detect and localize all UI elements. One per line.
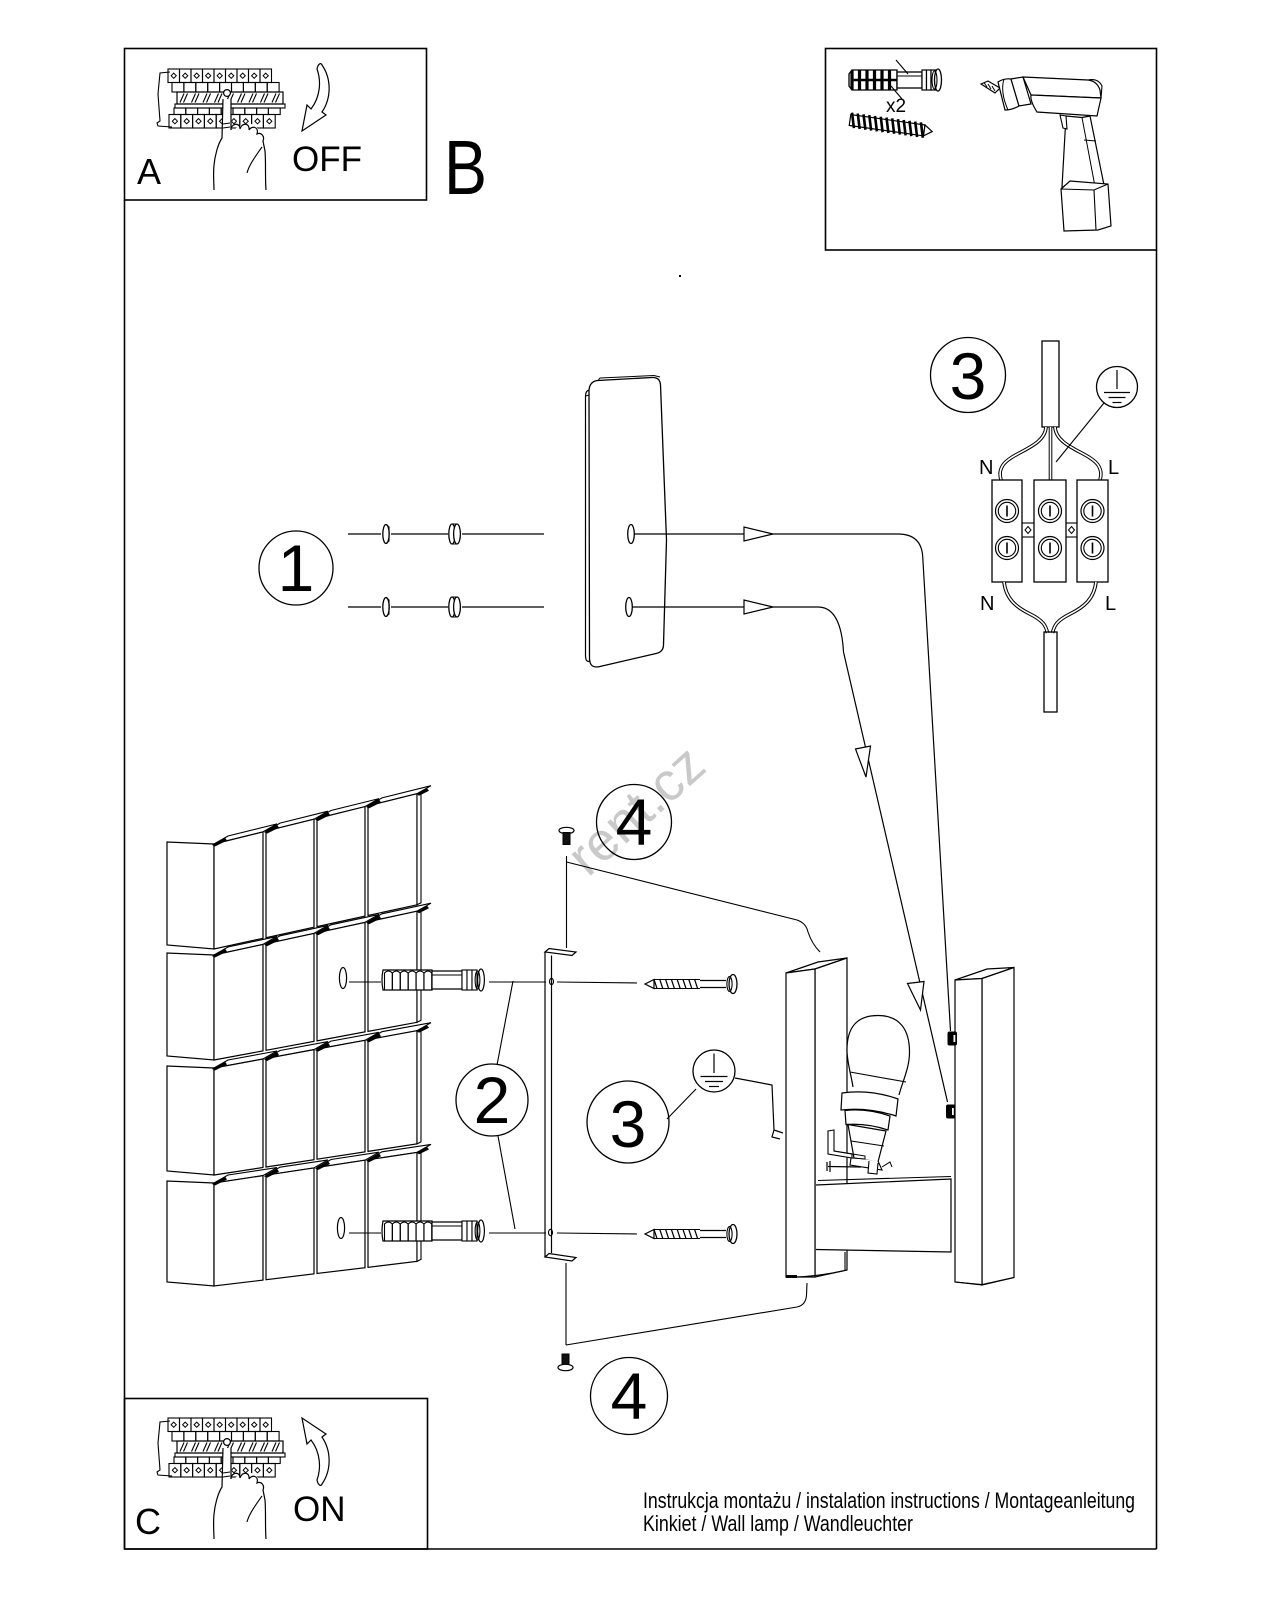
svg-text:B: B (444, 125, 487, 211)
svg-text:4: 4 (616, 785, 653, 859)
svg-text:3: 3 (610, 1087, 647, 1161)
svg-text:L: L (1105, 593, 1116, 615)
svg-text:4: 4 (611, 1359, 648, 1433)
svg-text:x2: x2 (886, 96, 906, 117)
svg-text:N: N (980, 593, 994, 615)
svg-text:Kinkiet / Wall lamp / Wandleuc: Kinkiet / Wall lamp / Wandleuchter (643, 1511, 913, 1536)
svg-text:2: 2 (474, 1063, 511, 1137)
svg-text:L: L (1108, 457, 1119, 479)
svg-text:ON: ON (293, 1490, 346, 1529)
svg-text:3: 3 (950, 339, 987, 413)
svg-text:Instrukcja montażu / instalati: Instrukcja montażu / instalation instruc… (643, 1488, 1135, 1513)
svg-text:N: N (979, 457, 993, 479)
svg-text:OFF: OFF (292, 140, 362, 179)
svg-text:A: A (137, 151, 161, 192)
svg-text:1: 1 (278, 531, 315, 605)
svg-text:C: C (135, 1501, 161, 1542)
